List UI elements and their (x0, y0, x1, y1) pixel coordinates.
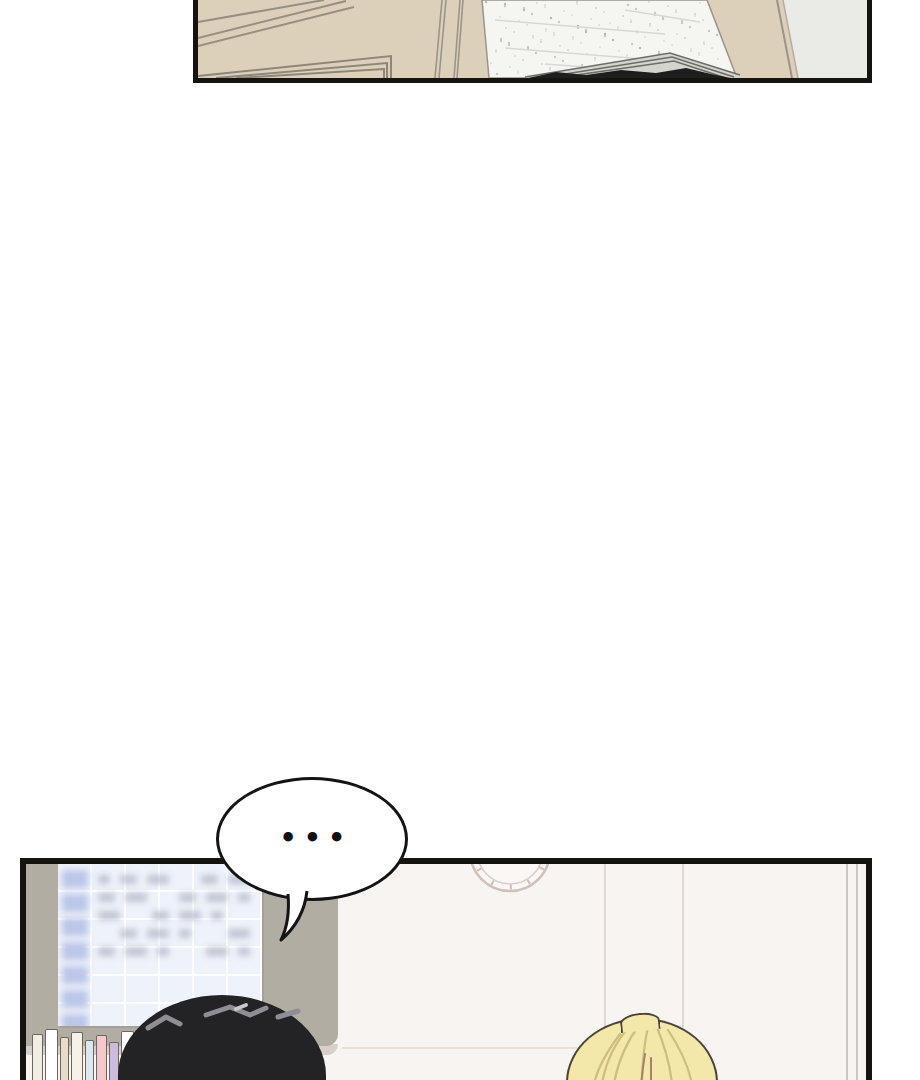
board-text-blob (125, 893, 147, 902)
book-spine (32, 1034, 43, 1080)
board-text-blob (98, 911, 120, 920)
board-text-blob (201, 875, 218, 884)
bottom-panel (20, 858, 872, 1080)
dark-haired-head (118, 995, 326, 1080)
speech-bubble-tail (272, 886, 320, 946)
board-text-rows (98, 866, 260, 965)
speech-bubble-text: ••• (280, 822, 353, 853)
board-header-cell (62, 990, 88, 1008)
board-header-cell (62, 966, 88, 984)
board-text-blob (98, 893, 115, 902)
blonde-haired-head (566, 1018, 718, 1080)
board-text-blob (120, 929, 137, 938)
board-text-blob (179, 911, 201, 920)
board-text-blob (206, 893, 228, 902)
board-text-blob (238, 947, 250, 956)
door-frame-line (846, 864, 848, 1080)
door-frame-line (856, 864, 858, 1080)
board-text-blob (98, 947, 115, 956)
top-panel-art (198, 0, 867, 78)
board-text-blob (179, 893, 196, 902)
board-text-blob (228, 929, 250, 938)
book-spine (71, 1032, 83, 1080)
board-header-cell (62, 942, 88, 960)
board-text-blob (120, 875, 137, 884)
board-header-cell (62, 894, 88, 912)
book-spine (60, 1037, 69, 1080)
board-text-blob (238, 893, 250, 902)
board-text-blob (152, 911, 169, 920)
book-spine (85, 1040, 94, 1080)
board-text-blob (147, 929, 169, 938)
wall-seam-line (682, 864, 684, 1042)
wall-seam-line (604, 864, 606, 1042)
board-text-blob (157, 947, 169, 956)
board-header-column (62, 864, 92, 1026)
top-panel (193, 0, 872, 83)
board-header-cell (62, 918, 88, 936)
board-text-blob (147, 875, 169, 884)
dark-hair-highlights (118, 995, 326, 1080)
board-text-blob (179, 929, 191, 938)
wall-clock-icon (467, 858, 553, 894)
board-text-blob (206, 947, 228, 956)
book-spine (45, 1029, 58, 1080)
board-text-blob (125, 947, 147, 956)
speech-bubble: ••• (216, 777, 408, 901)
panel-gutter (0, 84, 920, 858)
board-text-blob (98, 875, 110, 884)
board-text-blob (211, 911, 223, 920)
book-spine (96, 1035, 107, 1080)
board-header-cell (62, 870, 88, 888)
comic-page: { "page": {"width": 920, "height": 1080,… (0, 0, 920, 1080)
